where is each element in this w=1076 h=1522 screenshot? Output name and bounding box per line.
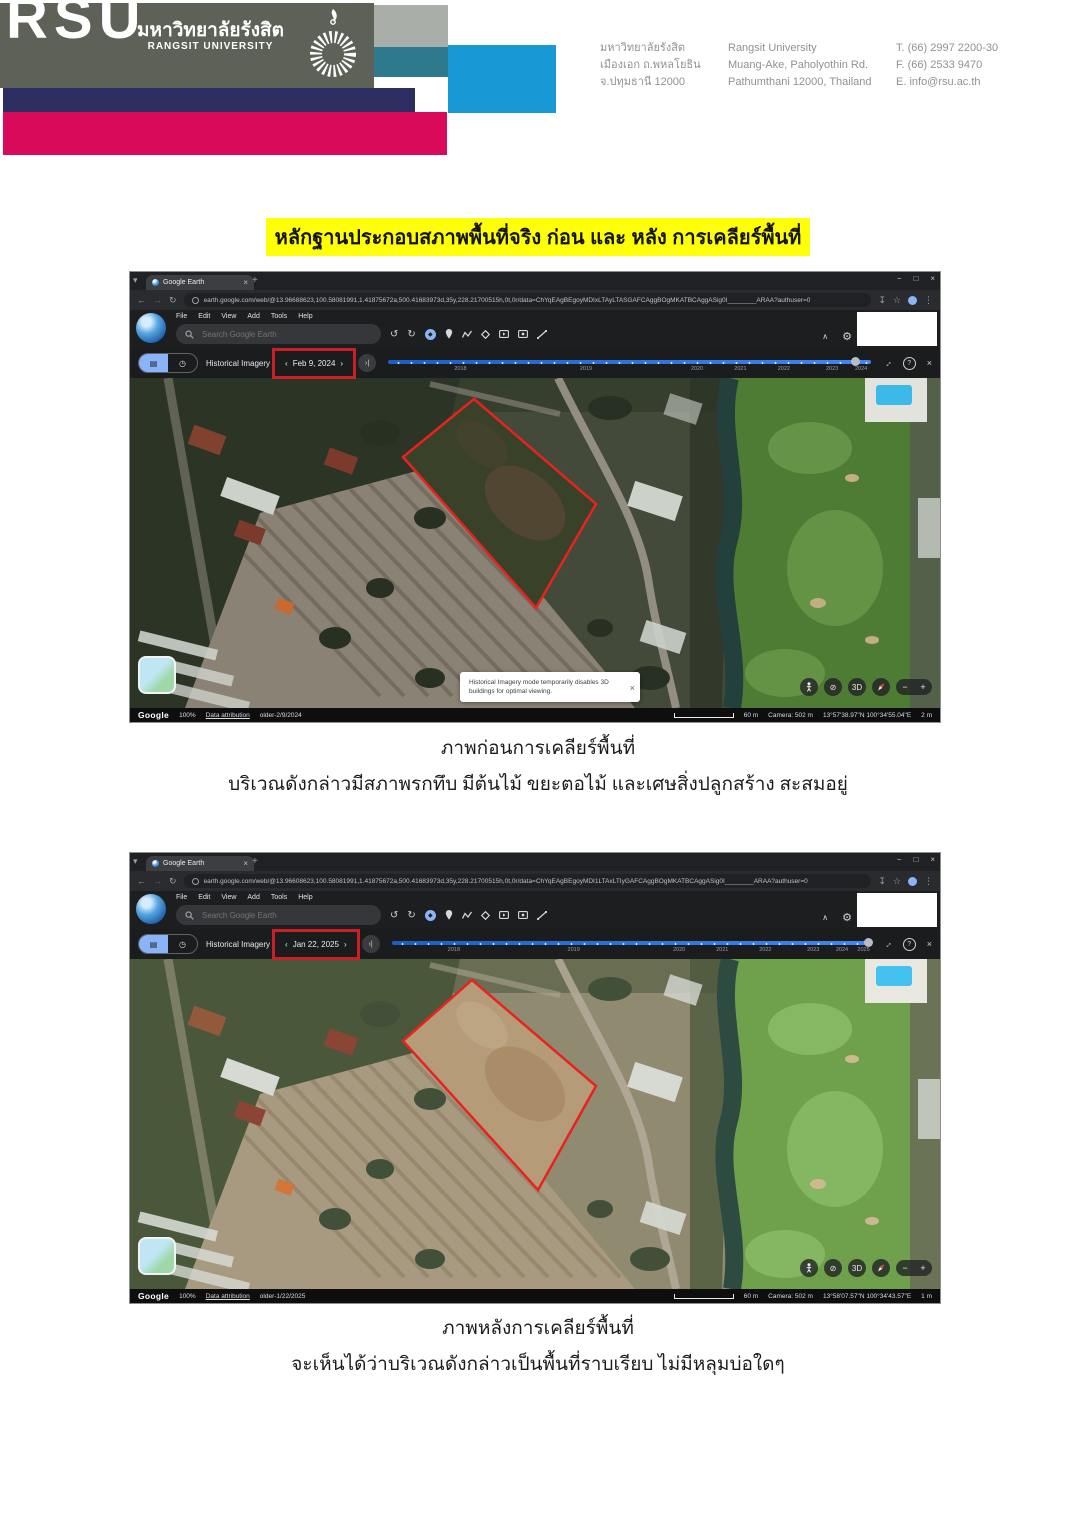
redacted-profile-area bbox=[857, 893, 937, 927]
google-logo: Google bbox=[138, 1291, 169, 1301]
year-tick: 2025 bbox=[857, 947, 869, 953]
tab-title: Google Earth bbox=[163, 279, 239, 286]
google-logo: Google bbox=[138, 710, 169, 720]
timeline-slider-handle[interactable] bbox=[864, 938, 873, 947]
collapse-toolbar-icon[interactable]: ∧ bbox=[822, 913, 828, 922]
screenshot-after: ▾ Google Earth × + − □ × ← → ↻ earth.goo… bbox=[130, 853, 940, 1303]
google-earth-toolbar: File Edit View Add Tools Help ↺ ↻ ◆ bbox=[130, 310, 940, 348]
search-box[interactable] bbox=[176, 324, 381, 344]
tab-close-icon[interactable]: × bbox=[243, 278, 248, 287]
satellite-map-after[interactable]: ⊘ 3D − + bbox=[130, 959, 940, 1289]
menu-help[interactable]: Help bbox=[298, 894, 312, 901]
zoom-out-icon[interactable]: − bbox=[902, 682, 907, 692]
annotation-red-box bbox=[272, 929, 360, 960]
measure-icon[interactable] bbox=[537, 911, 547, 920]
search-box[interactable] bbox=[176, 905, 381, 925]
expand-timeline-icon[interactable]: ↔ bbox=[881, 937, 894, 950]
site-info-icon[interactable] bbox=[192, 297, 199, 304]
page-title: หลักฐานประกอบสภาพพื้นที่จริง ก่อน และ หล… bbox=[266, 218, 811, 256]
zoom-in-icon[interactable]: + bbox=[920, 682, 925, 692]
caption-before-desc: บริเวณดังกล่าวมีสภาพรกทึบ มีต้นไม้ ขยะตอ… bbox=[0, 769, 1076, 799]
window-minimize-button[interactable]: − bbox=[897, 274, 902, 283]
browser-url-bar: ← → ↻ earth.google.com/web/@13.96608623,… bbox=[130, 871, 940, 891]
overview-minimap[interactable] bbox=[138, 1237, 176, 1275]
year-tick: 2022 bbox=[778, 366, 790, 372]
status-bar: Google 100% Data attribution older-1/22/… bbox=[130, 1289, 940, 1303]
pegman-icon[interactable] bbox=[800, 678, 818, 696]
historical-mode-toast: Historical Imagery mode temporarily disa… bbox=[460, 672, 640, 702]
window-minimize-button[interactable]: − bbox=[897, 855, 902, 864]
layers-icon[interactable]: ▤ bbox=[139, 935, 168, 953]
photo-icon[interactable] bbox=[518, 330, 528, 338]
menu-add[interactable]: Add bbox=[247, 313, 259, 320]
disable-3d-icon[interactable]: ⊘ bbox=[824, 1259, 842, 1277]
projects-icon[interactable]: ◆ bbox=[425, 329, 436, 340]
path-icon[interactable] bbox=[462, 330, 472, 339]
google-earth-logo-icon[interactable] bbox=[136, 894, 166, 924]
forward-icon[interactable]: → bbox=[153, 876, 162, 886]
deco-blue-block bbox=[448, 45, 556, 113]
layers-icon[interactable]: ▤ bbox=[139, 354, 168, 372]
year-tick: 2023 bbox=[807, 947, 819, 953]
google-earth-toolbar: File Edit View Add Tools Help ↺ ↻ ◆ bbox=[130, 891, 940, 929]
imagery-age: older-2/9/2024 bbox=[260, 712, 302, 719]
tab-search-icon[interactable]: ▾ bbox=[133, 275, 138, 286]
deco-navy-bar bbox=[3, 88, 415, 112]
year-tick: 2024 bbox=[855, 366, 867, 372]
pegman-icon[interactable] bbox=[800, 1259, 818, 1277]
placemark-pin-icon[interactable] bbox=[445, 329, 453, 339]
reload-icon[interactable]: ↻ bbox=[169, 295, 177, 306]
exit-historical-icon[interactable]: × bbox=[927, 358, 932, 368]
ground-elevation: 2 m bbox=[921, 712, 932, 719]
map-controls: ⊘ 3D − + bbox=[800, 678, 932, 696]
slideshow-icon[interactable] bbox=[499, 330, 509, 338]
back-icon[interactable]: ← bbox=[137, 876, 146, 886]
status-bar: Google 100% Data attribution older-2/9/2… bbox=[130, 708, 940, 722]
imagery-zoom-level: 100% bbox=[179, 1293, 196, 1300]
google-earth-favicon bbox=[152, 279, 159, 286]
scale-ruler bbox=[674, 713, 734, 718]
projects-icon[interactable]: ◆ bbox=[425, 910, 436, 921]
data-attribution-link[interactable]: Data attribution bbox=[206, 712, 250, 719]
ground-elevation: 1 m bbox=[921, 1293, 932, 1300]
skip-to-latest-button[interactable]: ›| bbox=[358, 354, 376, 372]
year-tick: 2021 bbox=[716, 947, 728, 953]
year-tick: 2020 bbox=[673, 947, 685, 953]
window-close-button[interactable]: × bbox=[930, 855, 935, 864]
browser-menu-icon[interactable]: ⋮ bbox=[924, 876, 933, 887]
back-icon[interactable]: ← bbox=[137, 295, 146, 305]
settings-gear-icon[interactable]: ⚙ bbox=[842, 330, 852, 343]
logo-panel: RSU มหาวิทยาลัยรังสิต RANGSIT UNIVERSITY bbox=[0, 3, 374, 88]
camera-altitude: Camera: 502 m bbox=[768, 1293, 813, 1300]
disable-3d-icon[interactable]: ⊘ bbox=[824, 678, 842, 696]
imagery-mode-toggle[interactable]: ▤ ◷ bbox=[138, 934, 198, 954]
document-page: RSU มหาวิทยาลัยรังสิต RANGSIT UNIVERSITY… bbox=[0, 0, 1076, 1522]
imagery-age: older-1/22/2025 bbox=[260, 1293, 306, 1300]
deco-teal-block bbox=[374, 47, 448, 77]
slideshow-icon[interactable] bbox=[499, 911, 509, 919]
forward-icon[interactable]: → bbox=[153, 295, 162, 305]
address-english: Rangsit University Muang-Ake, Paholyothi… bbox=[728, 40, 896, 91]
site-info-icon[interactable] bbox=[192, 878, 199, 885]
redo-icon[interactable]: ↻ bbox=[407, 329, 415, 340]
browser-tab-strip: ▾ Google Earth × + − □ × bbox=[130, 853, 940, 871]
menu-file[interactable]: File bbox=[176, 313, 187, 320]
year-tick: 2018 bbox=[454, 366, 466, 372]
scale-label: 60 m bbox=[744, 712, 758, 719]
placemark-pin-icon[interactable] bbox=[445, 910, 453, 920]
history-clock-icon[interactable]: ◷ bbox=[168, 935, 197, 953]
menu-add[interactable]: Add bbox=[247, 894, 259, 901]
bookmark-star-icon[interactable]: ☆ bbox=[893, 876, 901, 887]
menu-view[interactable]: View bbox=[221, 313, 236, 320]
browser-menu-icon[interactable]: ⋮ bbox=[924, 295, 933, 306]
profile-avatar[interactable] bbox=[908, 296, 917, 305]
scale-label: 60 m bbox=[744, 1293, 758, 1300]
address-thai: มหาวิทยาลัยรังสิต เมืองเอก ถ.พหลโยธิน จ.… bbox=[600, 40, 725, 91]
new-tab-button[interactable]: + bbox=[252, 275, 258, 286]
imagery-date-picker[interactable]: ‹ Jan 22, 2025 › bbox=[278, 937, 354, 952]
satellite-imagery[interactable] bbox=[130, 959, 940, 1289]
tab-close-icon[interactable]: × bbox=[243, 859, 248, 868]
screenshot-before: ▾ Google Earth × + − □ × ← → ↻ earth.goo… bbox=[130, 272, 940, 722]
zoom-controls[interactable]: − + bbox=[896, 1260, 932, 1276]
url-text: earth.google.com/web/@13.96688623,100.58… bbox=[204, 297, 811, 304]
tab-title: Google Earth bbox=[163, 860, 239, 867]
collapse-toolbar-icon[interactable]: ∧ bbox=[822, 332, 828, 341]
year-tick: 2019 bbox=[580, 366, 592, 372]
redacted-profile-area bbox=[857, 312, 937, 346]
annotation-red-box bbox=[272, 348, 356, 379]
menu-tools[interactable]: Tools bbox=[271, 894, 287, 901]
coordinates: 13°57'38.97"N 100°34'55.04"E bbox=[823, 712, 911, 719]
satellite-map-before[interactable]: ⊘ 3D − + Historical Imagery mode tempora… bbox=[130, 378, 940, 708]
browser-url-bar: ← → ↻ earth.google.com/web/@13.96688623,… bbox=[130, 290, 940, 310]
caption-after-desc: จะเห็นได้ว่าบริเวณดังกล่าวเป็นพื้นที่ราบ… bbox=[0, 1349, 1076, 1379]
help-icon[interactable]: ? bbox=[903, 938, 916, 951]
rsu-emblem-icon bbox=[302, 7, 364, 85]
polygon-icon[interactable] bbox=[481, 330, 490, 339]
imagery-timeline[interactable]: 2018 2019 2020 2021 2022 2023 2024 bbox=[388, 348, 871, 378]
3d-toggle-button[interactable]: 3D bbox=[848, 1259, 866, 1277]
measure-icon[interactable] bbox=[537, 330, 547, 339]
camera-altitude: Camera: 502 m bbox=[768, 712, 813, 719]
data-attribution-link[interactable]: Data attribution bbox=[206, 1293, 250, 1300]
university-name-en: RANGSIT UNIVERSITY bbox=[118, 41, 303, 52]
mode-label: Historical Imagery bbox=[206, 940, 270, 949]
zoom-controls[interactable]: − + bbox=[896, 679, 932, 695]
zoom-out-icon[interactable]: − bbox=[902, 1263, 907, 1273]
contact-info: T. (66) 2997 2200-30 F. (66) 2533 9470 E… bbox=[896, 40, 1071, 91]
profile-avatar[interactable] bbox=[908, 877, 917, 886]
address-field[interactable]: earth.google.com/web/@13.96608623,100.58… bbox=[184, 874, 872, 888]
imagery-zoom-level: 100% bbox=[179, 712, 196, 719]
imagery-timeline[interactable]: 2018 2019 2020 2021 2022 2023 2024 2025 bbox=[392, 929, 871, 959]
window-maximize-button[interactable]: □ bbox=[913, 855, 918, 864]
search-icon bbox=[185, 330, 194, 339]
polygon-icon[interactable] bbox=[481, 911, 490, 920]
expand-timeline-icon[interactable]: ↔ bbox=[881, 356, 894, 369]
year-tick: 2020 bbox=[691, 366, 703, 372]
compass-icon[interactable] bbox=[872, 1259, 890, 1277]
menu-help[interactable]: Help bbox=[298, 313, 312, 320]
undo-icon[interactable]: ↺ bbox=[390, 910, 398, 921]
zoom-in-icon[interactable]: + bbox=[920, 1263, 925, 1273]
google-earth-favicon bbox=[152, 860, 159, 867]
deco-magenta-bar bbox=[3, 112, 447, 155]
reload-icon[interactable]: ↻ bbox=[169, 876, 177, 887]
coordinates: 13°58'07.57"N 100°34'43.57"E bbox=[823, 1293, 911, 1300]
menu-edit[interactable]: Edit bbox=[198, 313, 210, 320]
menu-edit[interactable]: Edit bbox=[198, 894, 210, 901]
toast-close-icon[interactable]: × bbox=[630, 683, 635, 693]
compass-icon[interactable] bbox=[872, 678, 890, 696]
menu-file[interactable]: File bbox=[176, 894, 187, 901]
photo-icon[interactable] bbox=[518, 911, 528, 919]
satellite-imagery[interactable] bbox=[130, 378, 940, 708]
google-earth-logo-icon[interactable] bbox=[136, 313, 166, 343]
search-input[interactable] bbox=[200, 910, 354, 921]
browser-tab[interactable]: Google Earth × bbox=[146, 275, 254, 290]
caption-after-title: ภาพหลังการเคลียร์พื้นที่ bbox=[0, 1313, 1076, 1343]
menu-tools[interactable]: Tools bbox=[271, 313, 287, 320]
search-icon bbox=[185, 911, 194, 920]
undo-icon[interactable]: ↺ bbox=[390, 329, 398, 340]
bookmark-star-icon[interactable]: ☆ bbox=[893, 295, 901, 306]
year-tick: 2023 bbox=[826, 366, 838, 372]
overview-minimap[interactable] bbox=[138, 656, 176, 694]
year-tick: 2024 bbox=[836, 947, 848, 953]
install-icon[interactable]: ↧ bbox=[878, 295, 886, 306]
caption-before-title: ภาพก่อนการเคลียร์พื้นที่ bbox=[0, 733, 1076, 763]
deco-gray-block bbox=[374, 5, 448, 47]
history-clock-icon[interactable]: ◷ bbox=[168, 354, 197, 372]
imagery-mode-toggle[interactable]: ▤ ◷ bbox=[138, 353, 198, 373]
redo-icon[interactable]: ↻ bbox=[407, 910, 415, 921]
imagery-date-picker[interactable]: ‹ Feb 9, 2024 › bbox=[278, 356, 350, 371]
window-close-button[interactable]: × bbox=[930, 274, 935, 283]
year-tick: 2022 bbox=[759, 947, 771, 953]
historical-imagery-bar: ▤ ◷ Historical Imagery ‹ Feb 9, 2024 › ›… bbox=[130, 348, 940, 378]
url-text: earth.google.com/web/@13.96608623,100.58… bbox=[204, 878, 808, 885]
exit-historical-icon[interactable]: × bbox=[927, 939, 932, 949]
install-icon[interactable]: ↧ bbox=[878, 876, 886, 887]
window-maximize-button[interactable]: □ bbox=[913, 274, 918, 283]
3d-toggle-button[interactable]: 3D bbox=[848, 678, 866, 696]
help-icon[interactable]: ? bbox=[903, 357, 916, 370]
year-tick: 2021 bbox=[734, 366, 746, 372]
timeline-slider-handle[interactable] bbox=[851, 357, 860, 366]
browser-tab-strip: ▾ Google Earth × + − □ × bbox=[130, 272, 940, 290]
map-controls: ⊘ 3D − + bbox=[800, 1259, 932, 1277]
year-tick: 2018 bbox=[448, 947, 460, 953]
scale-ruler bbox=[674, 1294, 734, 1299]
address-field[interactable]: earth.google.com/web/@13.96688623,100.58… bbox=[184, 293, 872, 307]
mode-label: Historical Imagery bbox=[206, 359, 270, 368]
new-tab-button[interactable]: + bbox=[252, 856, 258, 867]
year-tick: 2019 bbox=[568, 947, 580, 953]
skip-to-latest-button[interactable]: ›| bbox=[362, 935, 380, 953]
historical-imagery-bar: ▤ ◷ Historical Imagery ‹ Jan 22, 2025 › … bbox=[130, 929, 940, 959]
path-icon[interactable] bbox=[462, 911, 472, 920]
search-input[interactable] bbox=[200, 329, 354, 340]
menu-view[interactable]: View bbox=[221, 894, 236, 901]
browser-tab[interactable]: Google Earth × bbox=[146, 856, 254, 871]
settings-gear-icon[interactable]: ⚙ bbox=[842, 911, 852, 924]
tab-search-icon[interactable]: ▾ bbox=[133, 856, 138, 867]
